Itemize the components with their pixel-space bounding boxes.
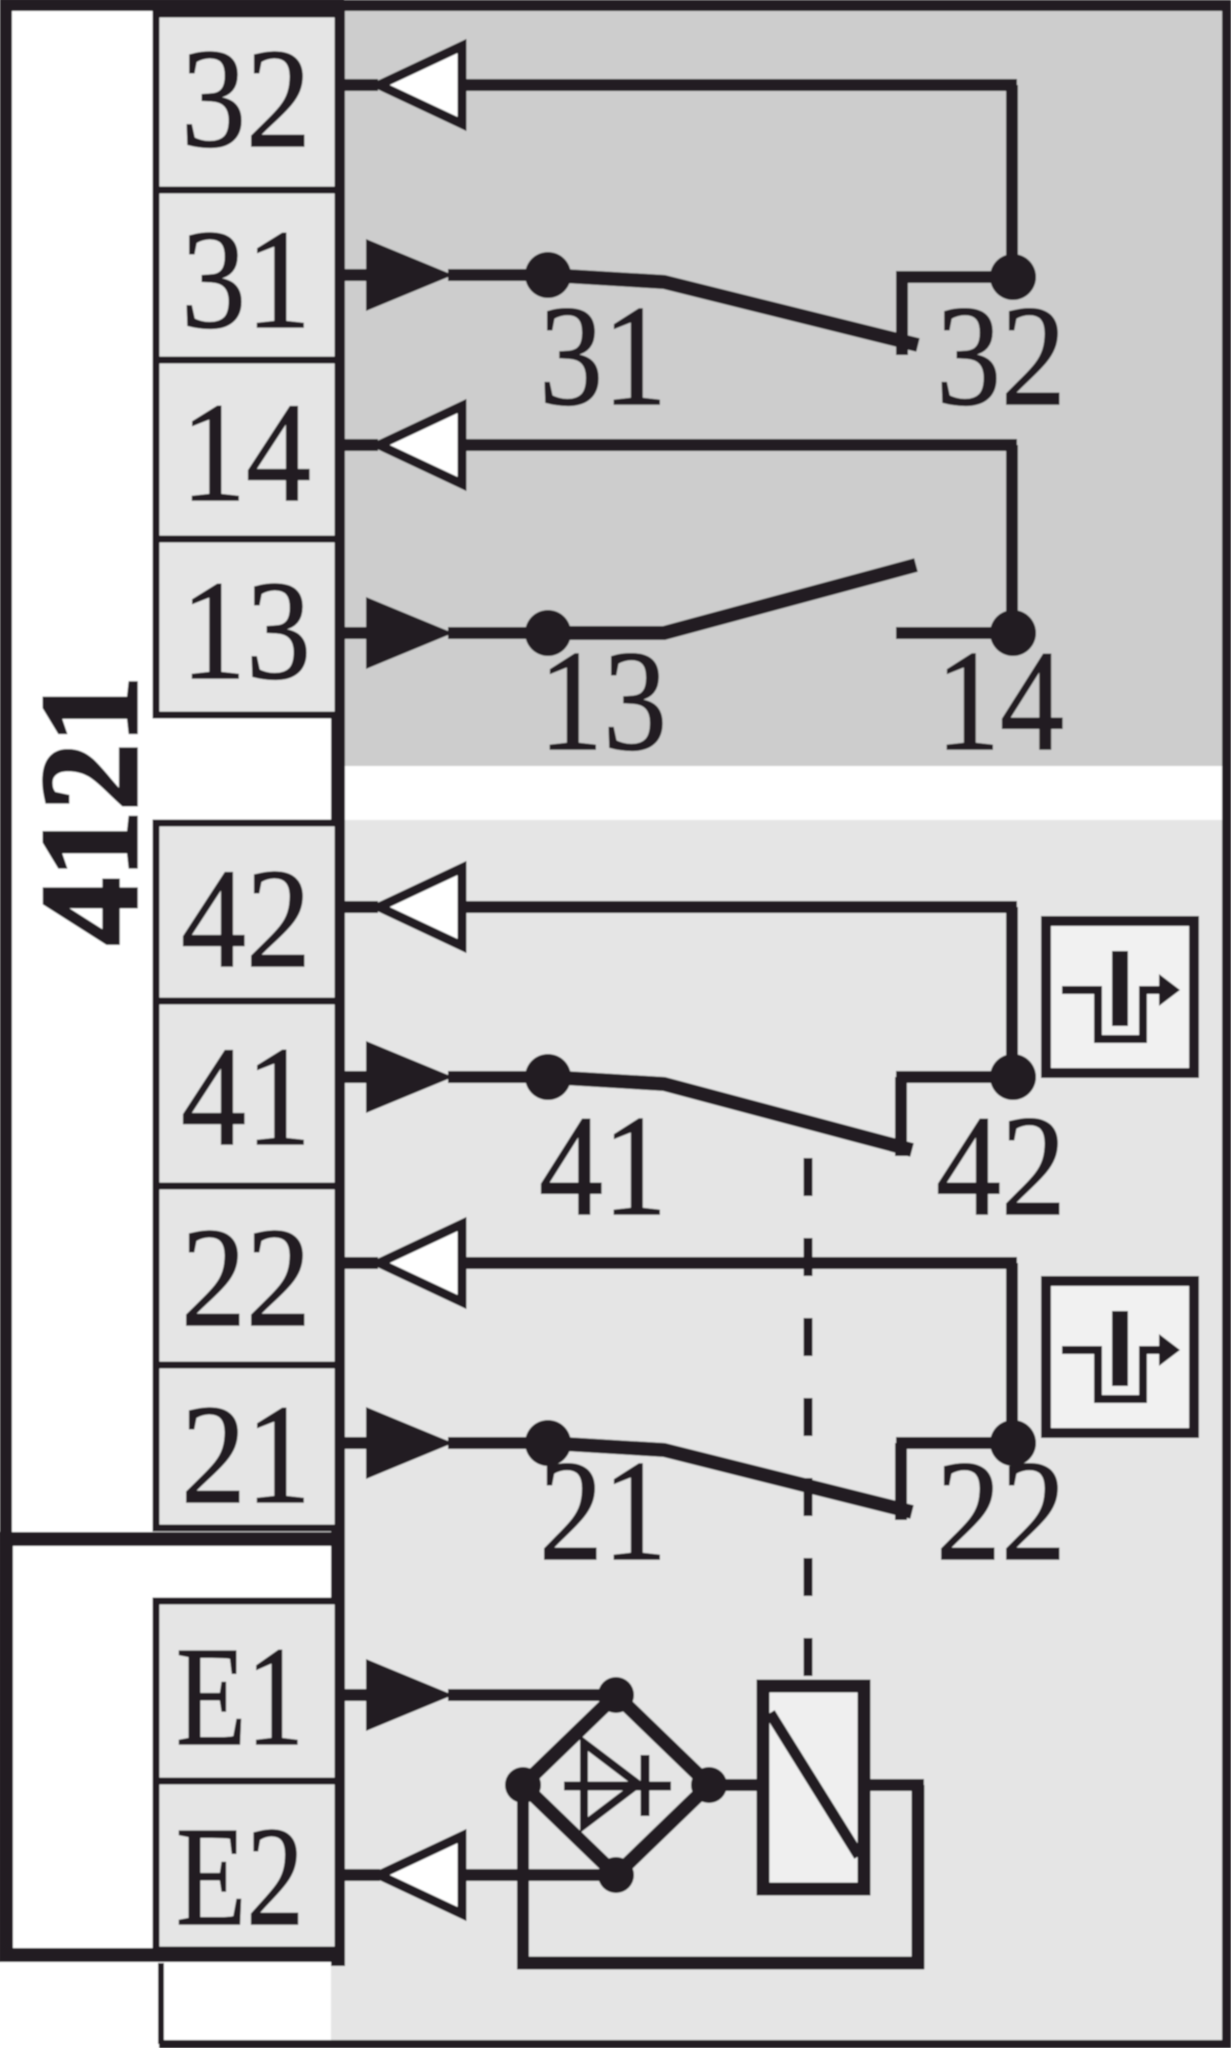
- svg-text:41: 41: [181, 1017, 311, 1175]
- svg-text:14: 14: [181, 373, 311, 531]
- svg-text:32: 32: [936, 277, 1066, 436]
- svg-text:E1: E1: [176, 1617, 304, 1775]
- svg-text:31: 31: [181, 200, 311, 358]
- svg-text:13: 13: [181, 551, 311, 709]
- svg-text:41: 41: [539, 1087, 667, 1246]
- svg-text:21: 21: [181, 1375, 311, 1533]
- svg-text:E2: E2: [176, 1797, 304, 1955]
- svg-text:4121: 4121: [13, 676, 167, 945]
- svg-text:22: 22: [181, 1198, 311, 1356]
- svg-text:42: 42: [936, 1087, 1066, 1246]
- svg-text:32: 32: [181, 19, 311, 177]
- svg-text:42: 42: [181, 839, 311, 997]
- svg-text:31: 31: [539, 277, 667, 436]
